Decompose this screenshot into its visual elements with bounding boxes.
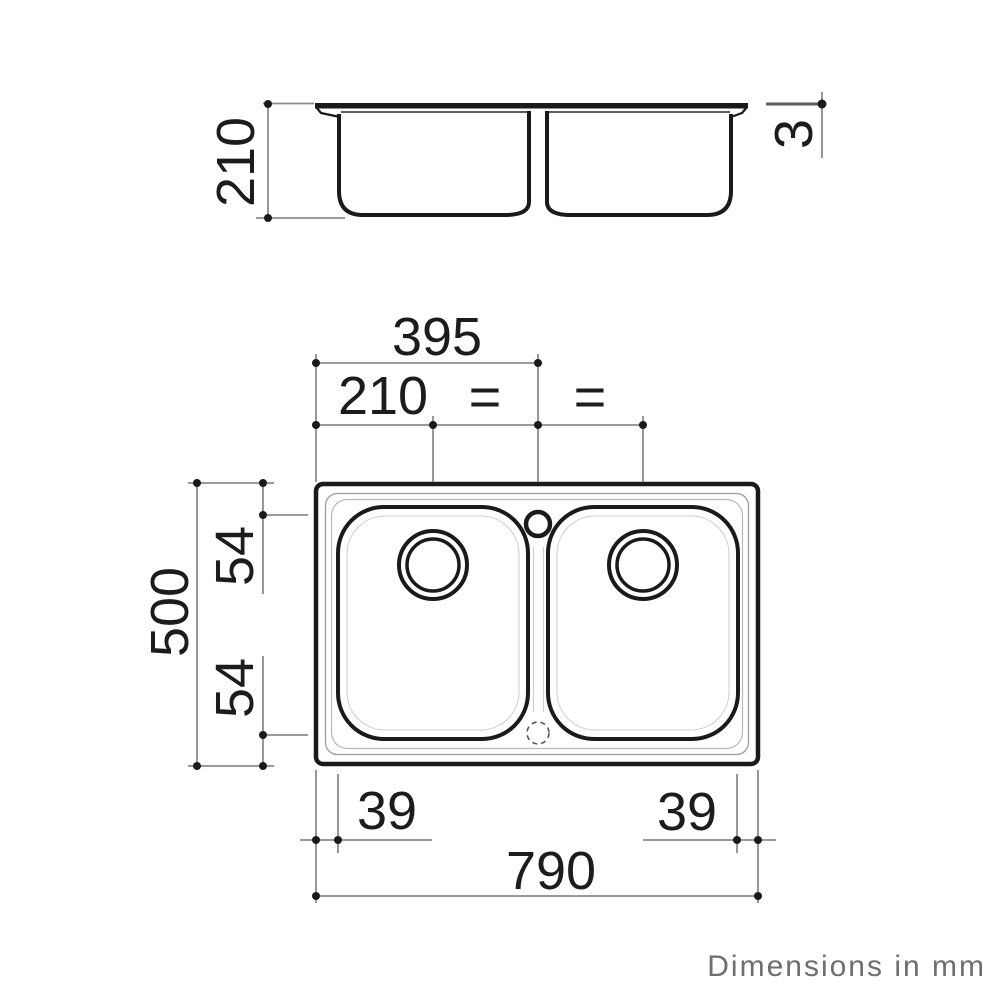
- dim-label-elevation-rim-height: 3: [767, 119, 821, 149]
- elevation-rim: [315, 103, 748, 109]
- dim-label-plan-drain-offset: 210: [338, 369, 428, 423]
- dim-label-plan-overall-width: 790: [506, 844, 596, 898]
- dim-label-plan-top-inset: 54: [208, 526, 262, 586]
- dim-label-equal-spacing-right: =: [574, 369, 607, 425]
- elevation-right-bowl: [547, 111, 731, 215]
- elevation-left-bowl: [339, 111, 529, 215]
- elevation-depth-dimension-lines: [256, 103, 345, 218]
- elevation-view-drawing: [256, 92, 827, 222]
- diagram-linework: [0, 0, 1000, 1000]
- sink-dimension-diagram: 210 3 395 210 = = 500 54 54 39 39 790 Di…: [0, 0, 1000, 1000]
- plan-right-bowl: [548, 507, 738, 739]
- dim-label-equal-spacing-left: =: [469, 369, 502, 425]
- plan-left-bowl: [338, 507, 528, 739]
- plan-tap-hole: [526, 512, 550, 536]
- plan-view-drawing: [316, 484, 758, 764]
- dim-label-plan-overall-depth: 500: [143, 567, 197, 657]
- dim-label-elevation-bowl-depth: 210: [209, 117, 263, 207]
- dim-label-plan-corner-left: 39: [357, 784, 417, 838]
- units-note: Dimensions in mm: [707, 950, 986, 984]
- dim-label-plan-bottom-inset: 54: [208, 658, 262, 718]
- dim-label-plan-corner-right: 39: [657, 785, 717, 839]
- dim-label-plan-center-span: 395: [392, 310, 482, 364]
